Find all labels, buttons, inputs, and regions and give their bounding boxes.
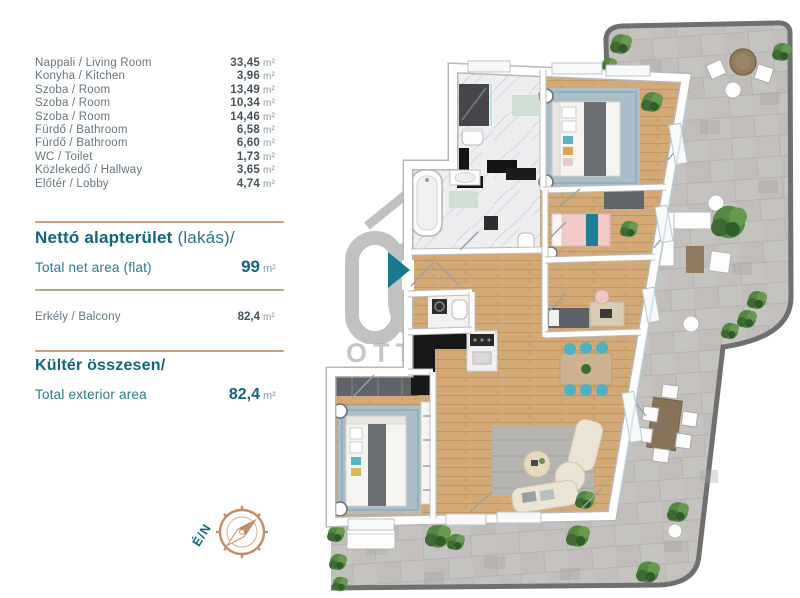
- room-value: 6,60: [210, 137, 260, 150]
- net-area-title-hu: Nettó alapterület: [35, 228, 173, 247]
- balcony-row: Erkély / Balcony 82,4 m²: [35, 311, 285, 323]
- table-row: Fürdő / Bathroom6,58m²: [35, 124, 285, 137]
- room-area-table: Nappali / Living Room33,45m² Konyha / Ki…: [35, 57, 285, 191]
- exterior-row: Total exterior area 82,4 m²: [35, 386, 285, 404]
- net-area-label: Total net area (flat): [35, 260, 210, 275]
- room-value: 6,58: [210, 124, 260, 137]
- table-row: Közlekedő / Hallway3,65m²: [35, 164, 285, 177]
- floorplan-page: OTTHON CENTRUM: [0, 0, 800, 598]
- room-value: 10,34: [210, 97, 260, 110]
- exterior-value: 82,4: [210, 386, 260, 404]
- room-unit: m²: [260, 178, 285, 191]
- table-row: Konyha / Kitchen3,96m²: [35, 70, 285, 83]
- table-row: Szoba / Room10,34m²: [35, 97, 285, 110]
- room-unit: m²: [260, 111, 285, 124]
- divider: [35, 350, 284, 352]
- room-label: WC / Toilet: [35, 151, 210, 164]
- room-unit: m²: [260, 70, 285, 83]
- room-value: 3,96: [210, 70, 260, 83]
- table-row: Szoba / Room13,49m²: [35, 84, 285, 97]
- room-label: Szoba / Room: [35, 84, 210, 97]
- room-unit: m²: [260, 164, 285, 177]
- exterior-unit: m²: [260, 390, 285, 402]
- room-label: Konyha / Kitchen: [35, 70, 210, 83]
- room-label: Előtér / Lobby: [35, 178, 210, 191]
- table-row: Előtér / Lobby4,74m²: [35, 178, 285, 191]
- divider: [35, 221, 284, 223]
- room-unit: m²: [260, 151, 285, 164]
- net-area-value: 99: [210, 257, 260, 277]
- table-row: Fürdő / Bathroom6,60m²: [35, 137, 285, 150]
- room-value: 1,73: [210, 151, 260, 164]
- balcony-unit: m²: [260, 312, 285, 323]
- room-unit: m²: [260, 97, 285, 110]
- room-unit: m²: [260, 137, 285, 150]
- exterior-title: Kültér összesen/: [35, 357, 165, 375]
- room-label: Nappali / Living Room: [35, 57, 210, 70]
- table-row: Szoba / Room14,46m²: [35, 111, 285, 124]
- net-area-title-suffix: (lakás)/: [173, 228, 235, 247]
- room-unit: m²: [260, 124, 285, 137]
- room-value: 4,74: [210, 178, 260, 191]
- table-row: WC / Toilet1,73m²: [35, 151, 285, 164]
- room-label: Szoba / Room: [35, 97, 210, 110]
- bedroom-4: [333, 374, 432, 516]
- net-area-row: Total net area (flat) 99 m²: [35, 257, 285, 277]
- net-area-unit: m²: [260, 263, 285, 275]
- room-value: 3,65: [210, 164, 260, 177]
- balcony-value: 82,4: [210, 311, 260, 323]
- balcony-label: Erkély / Balcony: [35, 311, 210, 323]
- room-label: Fürdő / Bathroom: [35, 137, 210, 150]
- room-unit: m²: [260, 57, 285, 70]
- room-label: Fürdő / Bathroom: [35, 124, 210, 137]
- room-value: 33,45: [210, 57, 260, 70]
- table-row: Nappali / Living Room33,45m²: [35, 57, 285, 70]
- net-area-title: Nettó alapterület (lakás)/: [35, 228, 235, 248]
- compass-icon: [204, 498, 280, 574]
- room-value: 14,46: [210, 111, 260, 124]
- exterior-label: Total exterior area: [35, 387, 210, 402]
- room-label: Közlekedő / Hallway: [35, 164, 210, 177]
- room-value: 13,49: [210, 84, 260, 97]
- room-label: Szoba / Room: [35, 111, 210, 124]
- divider: [35, 289, 284, 291]
- room-unit: m²: [260, 84, 285, 97]
